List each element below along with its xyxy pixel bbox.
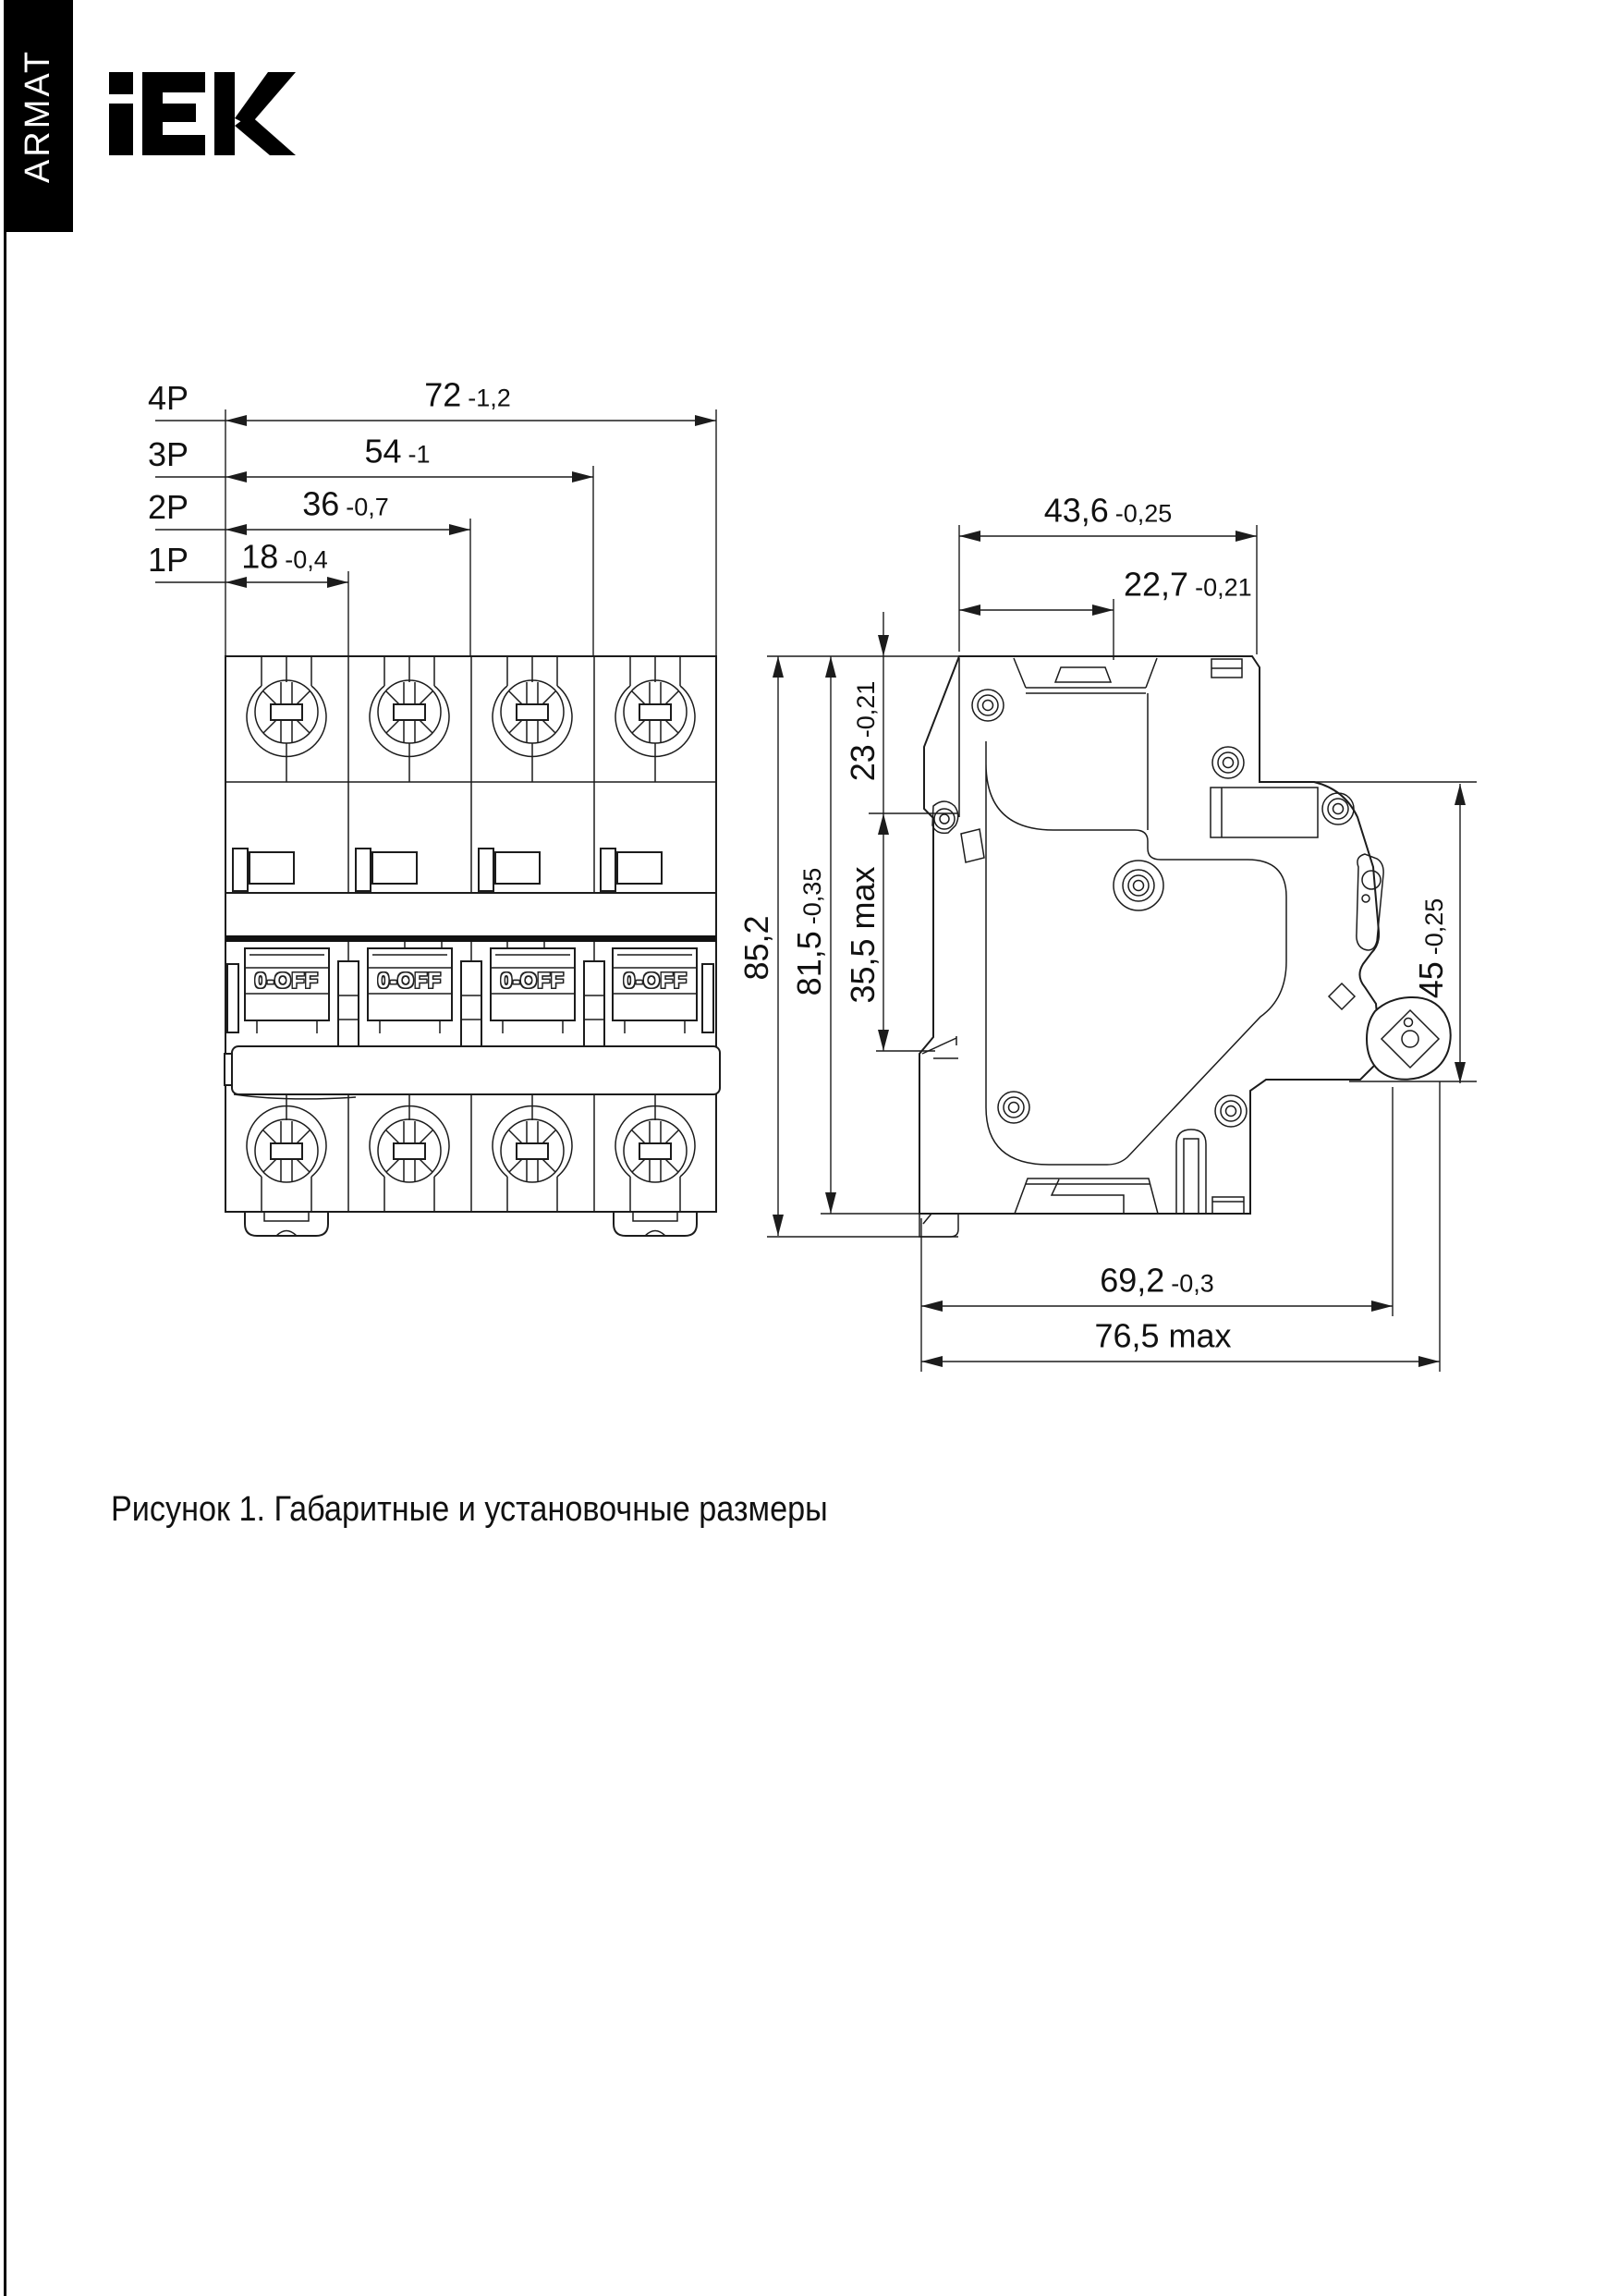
rivets [972,690,1354,1127]
dim-body-height: 81,5-0,35 [791,868,828,996]
dim-top-width: 43,6-0,25 [1044,492,1173,529]
side-view-drawing [919,656,1451,1237]
datasheet-page: ARMAT [0,0,1619,2296]
dim-width-4p: 72-1,2 [424,376,511,413]
figure-caption: Рисунок 1. Габаритные и установочные раз… [111,1490,828,1530]
pole-row-label-4p: 4P [148,379,189,418]
dim-width-2p: 36-0,7 [302,485,389,522]
dim-panel-height: 45-0,25 [1413,898,1450,999]
dim-mid-depth: 35,5 max [845,860,882,1003]
din-feet [245,1212,697,1236]
dim-max-depth: 76,5 max [1094,1317,1237,1354]
technical-drawing [0,0,1619,2296]
toggle-label-4: 0-OFF [624,969,688,994]
pole-row-label-3p: 3P [148,435,189,474]
dim-mount-depth: 69,2-0,3 [1100,1262,1214,1299]
dim-total-height: 85,2 [738,909,775,980]
toggle-label-3: 0-OFF [501,969,565,994]
pole-row-label-2p: 2P [148,488,189,527]
busbar-pockets [233,849,662,891]
dim-width-3p: 54-1 [364,433,430,470]
dim-width-1p: 18-0,4 [241,538,328,575]
dim-handle-offset: 22,7-0,21 [1124,566,1252,603]
pole-row-label-1p: 1P [148,541,189,580]
upper-tie-band [225,893,716,948]
toggle-label-2: 0-OFF [378,969,442,994]
toggle-label-1: 0-OFF [255,969,319,994]
dim-front-depth: 23-0,21 [845,681,882,782]
handle-crossbar [225,1046,720,1099]
front-view-drawing [225,656,720,1236]
